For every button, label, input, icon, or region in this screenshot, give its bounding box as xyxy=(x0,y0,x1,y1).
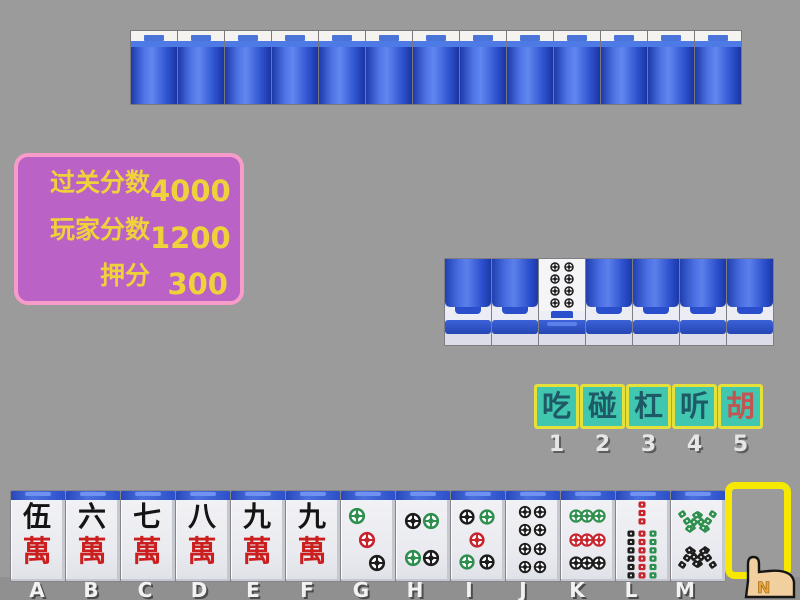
wan-number-char: 九 xyxy=(287,502,337,533)
player-score-label: 玩家分数 xyxy=(30,216,150,244)
hand-cursor: N xyxy=(736,552,798,600)
bamboo-stick xyxy=(627,556,636,579)
dot-pip xyxy=(349,507,366,524)
opponent-hand-row xyxy=(130,30,741,105)
dot-pip xyxy=(592,509,606,523)
meld-tile-back xyxy=(491,258,539,346)
hand-tile-H[interactable] xyxy=(395,490,451,582)
pass-score-label: 过关分数 xyxy=(30,169,150,197)
meld-tile-back xyxy=(585,258,633,346)
wan-suit-char: 萬 xyxy=(12,536,62,568)
dot-pip xyxy=(479,509,495,525)
tile-back-body xyxy=(131,47,177,104)
hand-hotkey-letter: A xyxy=(10,578,64,600)
action-hotkey-label: 4 xyxy=(672,432,717,457)
tile-back-body xyxy=(601,47,647,104)
wan-suit-char: 萬 xyxy=(122,536,172,568)
dot-pip xyxy=(469,532,485,548)
player-score-value: 1200 xyxy=(150,224,228,253)
hand-tile-face xyxy=(507,500,557,579)
hand-hotkey-letter: D xyxy=(172,578,226,600)
opponent-tile-back xyxy=(694,30,742,105)
tile-back-body xyxy=(319,47,365,104)
opponent-tile-back xyxy=(130,30,178,105)
player-hand: 伍萬六萬七萬八萬九萬九萬 xyxy=(10,490,725,582)
hand-tile-face xyxy=(452,500,502,579)
meld-row xyxy=(444,258,773,346)
dot-pip xyxy=(550,274,560,284)
hand-hotkey-letter: M xyxy=(658,578,712,600)
tile-back-body xyxy=(695,47,741,104)
meld-back-band-bottom xyxy=(445,334,491,345)
meld-face-bump xyxy=(551,311,573,318)
opponent-tile-back xyxy=(600,30,648,105)
dot-pip xyxy=(564,262,574,272)
action-hotkey-label: 5 xyxy=(718,432,763,457)
game-table: 过关分数 4000 玩家分数 1200 押分 300 吃碰杠听胡 12345 伍… xyxy=(0,0,800,600)
hand-tile-top-bump xyxy=(685,492,711,496)
dot-pip xyxy=(459,554,475,570)
hand-tile-J[interactable] xyxy=(505,490,561,582)
dot-pip xyxy=(518,524,531,537)
wan-suit-char: 萬 xyxy=(67,536,117,568)
meld-back-band-bottom xyxy=(727,334,773,345)
hand-tile-top-bump xyxy=(135,492,161,496)
dot-pip xyxy=(405,549,422,566)
meld-back-bump xyxy=(690,307,716,314)
hand-tile-top-bump xyxy=(190,492,216,496)
hand-tile-D[interactable]: 八萬 xyxy=(175,490,231,582)
dot-pip xyxy=(564,286,574,296)
meld-back-bump xyxy=(455,307,481,314)
opponent-tile-back xyxy=(506,30,554,105)
hand-tile-face: 伍萬 xyxy=(12,500,62,579)
meld-back-body xyxy=(727,259,773,307)
hand-tile-face: 七萬 xyxy=(122,500,172,579)
meld-tile-face xyxy=(539,259,585,311)
hand-tile-face: 九萬 xyxy=(287,500,337,579)
meld-back-body xyxy=(492,259,538,307)
opponent-tile-back xyxy=(459,30,507,105)
meld-back-band-blue xyxy=(680,320,726,334)
hand-tile-face xyxy=(562,500,612,579)
meld-back-band-blue xyxy=(727,320,773,334)
score-row-player: 玩家分数 1200 xyxy=(28,216,228,245)
hand-hotkey-letter: F xyxy=(280,578,334,600)
hand-tile-B[interactable]: 六萬 xyxy=(65,490,121,582)
meld-back-bump xyxy=(502,307,528,314)
meld-back-band-blue xyxy=(445,320,491,334)
opponent-tile-back xyxy=(647,30,695,105)
dot-pip xyxy=(518,505,531,518)
bet-score-value: 300 xyxy=(150,270,228,299)
opponent-tile-back xyxy=(553,30,601,105)
meld-back-band-blue xyxy=(633,320,679,334)
hand-tile-top-bump xyxy=(575,492,601,496)
hand-tile-L[interactable] xyxy=(615,490,671,582)
dot-pip xyxy=(518,561,531,574)
tile-back-body xyxy=(648,47,694,104)
meld-back-band-bottom xyxy=(492,334,538,345)
meld-tile-faceup-dot8 xyxy=(538,258,586,346)
wan-number-char: 六 xyxy=(67,502,117,533)
score-row-bet: 押分 300 xyxy=(28,262,228,291)
dot-pip xyxy=(550,298,560,308)
wan-number-char: 八 xyxy=(177,502,227,533)
hand-tile-top-bump xyxy=(300,492,326,496)
dot-pip xyxy=(533,505,546,518)
opponent-tile-back xyxy=(412,30,460,105)
dot-pip xyxy=(564,274,574,284)
tile-back-body xyxy=(460,47,506,104)
wan-number-char: 九 xyxy=(232,502,282,533)
score-row-pass: 过关分数 4000 xyxy=(28,169,228,198)
meld-back-bump xyxy=(737,307,763,314)
hand-tile-top-bump xyxy=(465,492,491,496)
bet-score-label: 押分 xyxy=(30,262,150,290)
hand-tile-face xyxy=(397,500,447,579)
meld-back-band-bottom xyxy=(633,334,679,345)
bamboo-stick xyxy=(649,530,658,553)
action-hotkey-label: 2 xyxy=(580,432,625,457)
hand-hotkey-letter: G xyxy=(334,578,388,600)
wan-number-char: 伍 xyxy=(12,502,62,533)
hand-tile-top-bump xyxy=(355,492,381,496)
tile-back-body xyxy=(366,47,412,104)
hand-tile-E[interactable]: 九萬 xyxy=(230,490,286,582)
hand-tile-K[interactable] xyxy=(560,490,616,582)
dot-pip xyxy=(533,524,546,537)
action-hotkey-label: 3 xyxy=(626,432,671,457)
hand-tile-I[interactable] xyxy=(450,490,506,582)
action-hotkey-row: 12345 xyxy=(534,432,763,457)
hand-cursor-key-label: N xyxy=(757,578,770,597)
hand-tile-F[interactable]: 九萬 xyxy=(285,490,341,582)
tile-back-body xyxy=(554,47,600,104)
dot-pip xyxy=(423,513,440,530)
meld-back-band-bottom xyxy=(680,334,726,345)
dot-pip xyxy=(518,542,531,555)
opponent-tile-back xyxy=(271,30,319,105)
dot-pip xyxy=(533,542,546,555)
tile-back-body xyxy=(507,47,553,104)
bamboo-stick xyxy=(638,501,647,524)
meld-back-bump xyxy=(596,307,622,314)
hand-tile-face xyxy=(617,500,667,579)
wan-suit-char: 萬 xyxy=(232,536,282,568)
opponent-tile-back xyxy=(365,30,413,105)
meld-tile-back xyxy=(444,258,492,346)
dot-pip xyxy=(533,561,546,574)
meld-face-band-bottom xyxy=(539,334,585,345)
meld-back-band-bottom xyxy=(586,334,632,345)
meld-back-band-blue xyxy=(586,320,632,334)
action-button-row: 吃碰杠听胡 xyxy=(534,384,763,429)
dot-pip xyxy=(479,554,495,570)
hand-hotkey-letter: C xyxy=(118,578,172,600)
hand-hotkey-letter: H xyxy=(388,578,442,600)
hand-tile-top-bump xyxy=(80,492,106,496)
tile-back-body xyxy=(272,47,318,104)
hand-tile-face: 八萬 xyxy=(177,500,227,579)
hand-tile-top-bump xyxy=(630,492,656,496)
hand-tile-G[interactable] xyxy=(340,490,396,582)
dot-pip xyxy=(459,509,475,525)
meld-face-bump-highlight xyxy=(547,322,577,326)
tile-back-body xyxy=(178,47,224,104)
dot-pip xyxy=(369,555,386,572)
action-button-3[interactable]: 杠 xyxy=(626,384,671,429)
meld-back-bump xyxy=(643,307,669,314)
hand-hotkey-letter: J xyxy=(496,578,550,600)
hand-tile-face: 九萬 xyxy=(232,500,282,579)
dot-pip xyxy=(359,531,376,548)
opponent-tile-back xyxy=(318,30,366,105)
hand-tile-A[interactable]: 伍萬 xyxy=(10,490,66,582)
hand-hotkey-letter: E xyxy=(226,578,280,600)
hand-hotkey-letters: ABCDEFGHIJKLM xyxy=(10,578,712,600)
action-button-5[interactable]: 胡 xyxy=(718,384,763,429)
action-buttons: 吃碰杠听胡 12345 xyxy=(534,384,763,457)
dot-pip xyxy=(550,286,560,296)
bamboo-stick xyxy=(638,530,647,553)
dot-pip xyxy=(564,298,574,308)
wan-suit-char: 萬 xyxy=(177,536,227,568)
bamboo-stick xyxy=(649,556,658,579)
hand-tile-face: 六萬 xyxy=(67,500,117,579)
tile-back-body xyxy=(225,47,271,104)
hand-tile-top-bump xyxy=(25,492,51,496)
wan-suit-char: 萬 xyxy=(287,536,337,568)
bamboo-stick xyxy=(627,530,636,553)
dot-pip xyxy=(423,549,440,566)
hand-tile-top-bump xyxy=(245,492,271,496)
hand-hotkey-letter: L xyxy=(604,578,658,600)
dot-pip xyxy=(592,556,606,570)
meld-tile-back xyxy=(679,258,727,346)
opponent-tile-back xyxy=(224,30,272,105)
dot-pip xyxy=(592,533,606,547)
hand-tile-C[interactable]: 七萬 xyxy=(120,490,176,582)
bamboo-stick xyxy=(638,556,647,579)
dot-pip xyxy=(405,513,422,530)
meld-back-band-blue xyxy=(492,320,538,334)
hand-hotkey-letter: I xyxy=(442,578,496,600)
score-panel: 过关分数 4000 玩家分数 1200 押分 300 xyxy=(14,153,244,305)
opponent-tile-back xyxy=(177,30,225,105)
meld-back-body xyxy=(445,259,491,307)
hand-tile-top-bump xyxy=(410,492,436,496)
hand-hotkey-letter: K xyxy=(550,578,604,600)
tile-back-body xyxy=(413,47,459,104)
pass-score-value: 4000 xyxy=(150,177,228,206)
hand-tile-M[interactable] xyxy=(670,490,726,582)
hand-tile-face xyxy=(342,500,392,579)
meld-back-body xyxy=(680,259,726,307)
wan-number-char: 七 xyxy=(122,502,172,533)
action-button-1[interactable]: 吃 xyxy=(534,384,579,429)
meld-back-body xyxy=(633,259,679,307)
action-button-2[interactable]: 碰 xyxy=(580,384,625,429)
hand-tile-top-bump xyxy=(520,492,546,496)
meld-back-body xyxy=(586,259,632,307)
hand-tile-face xyxy=(672,500,722,579)
hand-hotkey-letter: B xyxy=(64,578,118,600)
meld-tile-back xyxy=(726,258,774,346)
action-button-4[interactable]: 听 xyxy=(672,384,717,429)
dot-pip xyxy=(550,262,560,272)
action-hotkey-label: 1 xyxy=(534,432,579,457)
meld-tile-back xyxy=(632,258,680,346)
